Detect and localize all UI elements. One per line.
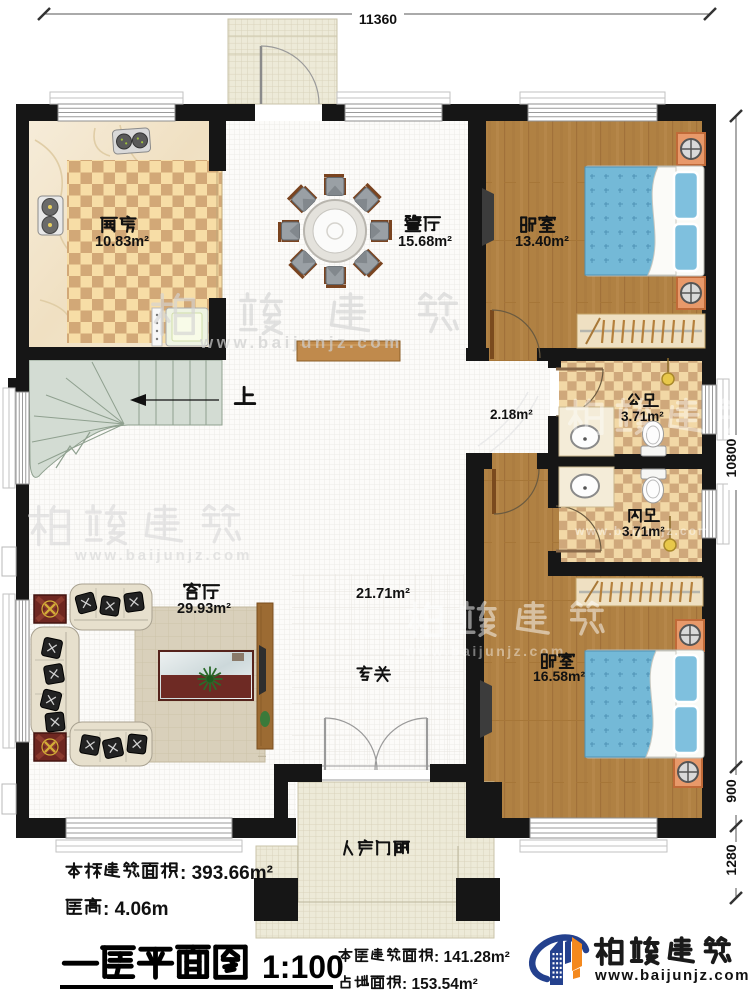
svg-text:29.93m²: 29.93m² [177, 601, 231, 617]
svg-text:: 4.06m: : 4.06m [103, 899, 168, 920]
svg-text:13.40m²: 13.40m² [515, 234, 569, 250]
svg-text:www.baijunjz.com: www.baijunjz.com [594, 967, 750, 984]
svg-text:3.71m²: 3.71m² [621, 409, 664, 424]
svg-text:10800: 10800 [723, 438, 739, 477]
svg-text:www.baijunjz.com: www.baijunjz.com [199, 333, 403, 352]
svg-text:900: 900 [723, 779, 739, 803]
svg-text:11360: 11360 [359, 11, 397, 27]
svg-text:: 393.66m²: : 393.66m² [180, 863, 273, 884]
svg-text:www.baijunjz.com: www.baijunjz.com [74, 547, 252, 564]
svg-text:: 153.54m²: : 153.54m² [402, 976, 478, 993]
svg-text:10.83m²: 10.83m² [95, 234, 149, 250]
svg-text:1:100: 1:100 [262, 949, 344, 985]
svg-text:3.71m²: 3.71m² [622, 524, 665, 539]
svg-text:21.71m²: 21.71m² [356, 586, 410, 602]
svg-text:16.58m²: 16.58m² [533, 668, 585, 684]
svg-text:2.18m²: 2.18m² [490, 407, 533, 422]
svg-text:15.68m²: 15.68m² [398, 234, 452, 250]
svg-text:: 141.28m²: : 141.28m² [434, 949, 510, 966]
svg-text:1280: 1280 [723, 844, 739, 875]
